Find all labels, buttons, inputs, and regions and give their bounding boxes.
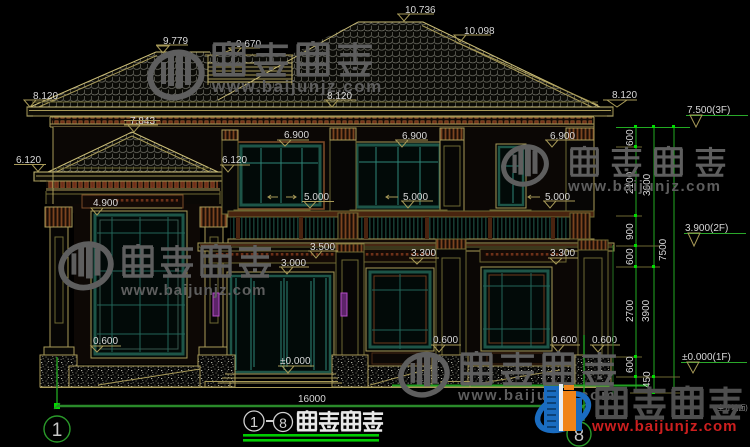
svg-text:www.baijunjz.com: www.baijunjz.com	[211, 77, 383, 96]
svg-text:3.900(2F): 3.900(2F)	[685, 223, 728, 234]
svg-text:8.120: 8.120	[612, 90, 637, 101]
svg-text:1: 1	[52, 420, 63, 441]
svg-text:0.600: 0.600	[552, 335, 577, 346]
svg-text:6.120: 6.120	[222, 155, 247, 166]
svg-text:6.900: 6.900	[284, 130, 309, 141]
svg-text:0.600: 0.600	[592, 335, 617, 346]
svg-text:1: 1	[250, 414, 258, 431]
svg-text:7.500(3F): 7.500(3F)	[687, 105, 730, 116]
svg-text:www.baijunjz.com: www.baijunjz.com	[567, 178, 721, 195]
svg-text:www.baijunjz.com: www.baijunjz.com	[457, 387, 616, 404]
svg-text:www.baijunjz.com: www.baijunjz.com	[120, 282, 266, 299]
svg-text:0.600: 0.600	[93, 336, 118, 347]
svg-text:±0.000(1F): ±0.000(1F)	[682, 352, 731, 363]
svg-text:±0.000: ±0.000	[280, 356, 311, 367]
svg-text:8: 8	[279, 415, 287, 431]
svg-text:4.900: 4.900	[93, 198, 118, 209]
svg-text:3.300: 3.300	[550, 248, 575, 259]
svg-text:600: 600	[625, 129, 636, 146]
svg-text:600: 600	[625, 356, 636, 373]
svg-text:900: 900	[625, 223, 636, 240]
svg-text:16000: 16000	[298, 394, 326, 405]
svg-text:www.baijunjz.com: www.baijunjz.com	[591, 418, 737, 435]
svg-text:0.600: 0.600	[433, 335, 458, 346]
svg-text:450: 450	[642, 371, 653, 388]
svg-text:2700: 2700	[625, 299, 636, 322]
svg-text:3.300: 3.300	[411, 248, 436, 259]
svg-text:600: 600	[625, 248, 636, 265]
svg-text:3900: 3900	[641, 299, 652, 322]
svg-text:7500: 7500	[658, 238, 669, 261]
